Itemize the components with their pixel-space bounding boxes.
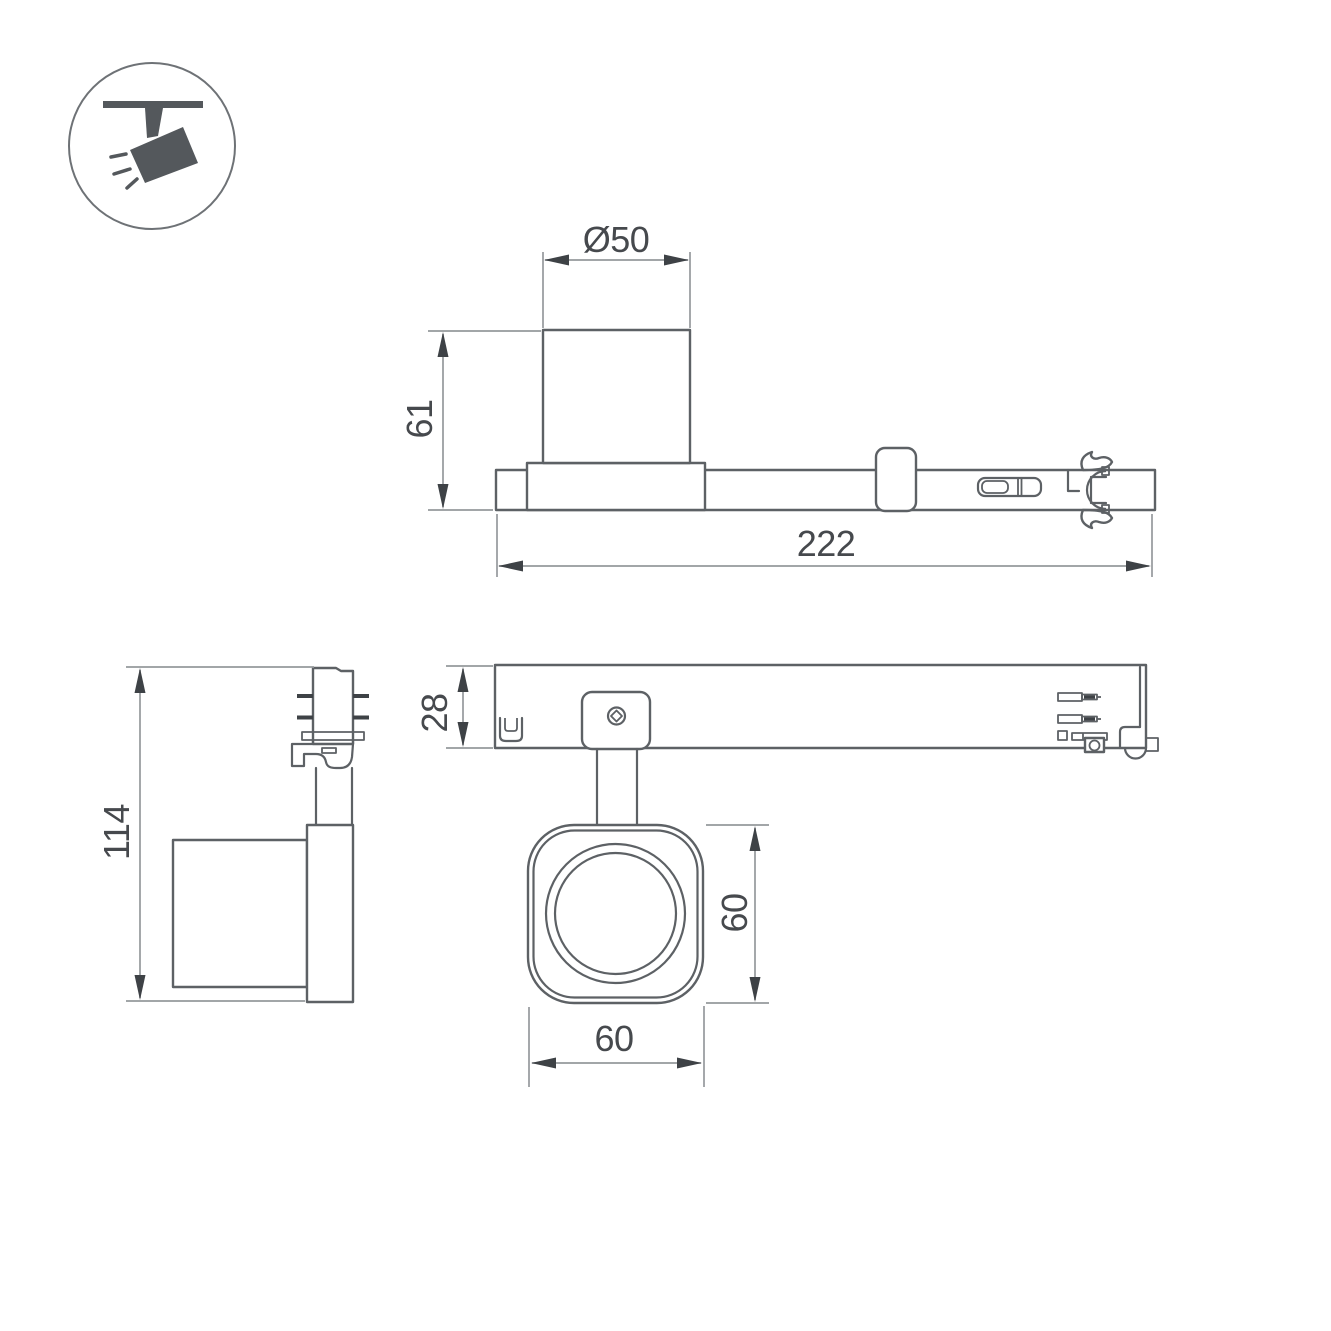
icon-ceiling-line [103, 101, 203, 108]
lamp-head-body [173, 840, 307, 987]
front-view: 114 [96, 667, 369, 1002]
flange-cap-right [353, 732, 364, 740]
dimension-length-222: 222 [497, 514, 1152, 577]
dimension-drawing-page: Ø50 61 222 [0, 0, 1331, 1331]
dimension-depth-28: 28 [414, 666, 493, 748]
arrowhead-right [1126, 561, 1151, 572]
product-type-badge [69, 63, 235, 229]
arrowhead-up [750, 826, 761, 851]
dimension-head-height-60: 60 [706, 825, 769, 1003]
arrowhead-left [544, 255, 569, 266]
plan-view: 28 60 60 [414, 665, 1158, 1087]
dim-label-depth: 28 [414, 693, 455, 732]
lamp-head-face [528, 825, 703, 1003]
dim-label-diameter: Ø50 [583, 219, 650, 260]
flange-cap-left [302, 732, 313, 740]
arrowhead-down [438, 484, 449, 509]
lamp-mount-base [527, 463, 705, 510]
lamp-head-back-column [307, 825, 353, 1002]
arrowhead-right [664, 255, 689, 266]
arrowhead-up [458, 667, 469, 692]
yoke-stem-top [597, 749, 637, 827]
arrowhead-up [135, 668, 146, 693]
side-view-object [496, 330, 1155, 528]
dim-label-length: 222 [797, 523, 856, 564]
side-view: Ø50 61 222 [399, 219, 1155, 577]
arrowhead-left [498, 561, 523, 572]
end-step-tab [1146, 738, 1158, 751]
dim-label-head-width: 60 [594, 1018, 633, 1059]
yoke-stem [316, 768, 352, 825]
dimension-diameter-50: Ø50 [543, 219, 690, 328]
dim-label-head-height: 60 [714, 893, 755, 932]
dim-label-height: 61 [399, 399, 440, 438]
arrowhead-down [458, 722, 469, 747]
bracket-slot [322, 748, 336, 753]
plan-view-object [495, 665, 1158, 1003]
arrowhead-down [135, 975, 146, 1000]
technical-drawing: Ø50 61 222 [0, 0, 1331, 1331]
adapter-lock-knob [876, 448, 916, 511]
arrowhead-left [531, 1058, 556, 1069]
lamp-cylinder-body [543, 330, 690, 463]
arrowhead-down [750, 977, 761, 1002]
arrowhead-up [438, 332, 449, 357]
dim-label-height: 114 [96, 804, 137, 860]
arrowhead-right [677, 1058, 702, 1069]
dimension-head-width-60: 60 [529, 1006, 704, 1087]
track-end-latch [1068, 452, 1112, 528]
end-dome-tab [1125, 748, 1146, 759]
front-view-object [173, 668, 369, 1002]
mount-plate [582, 692, 650, 749]
